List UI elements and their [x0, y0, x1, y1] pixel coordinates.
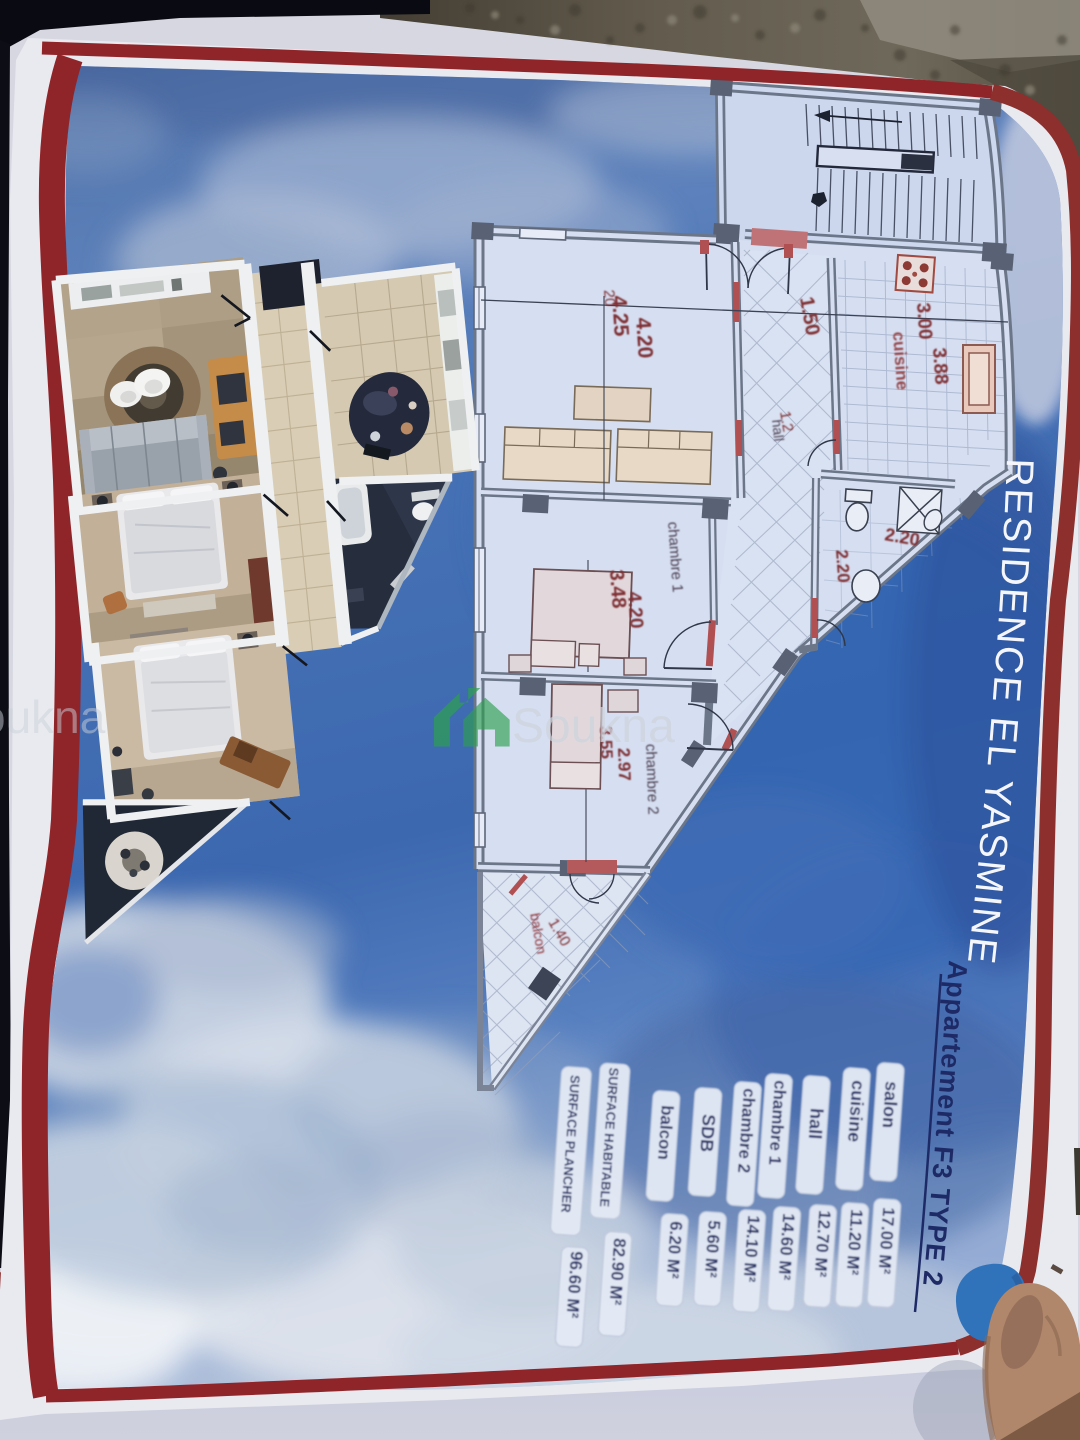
svg-text:3.00: 3.00 — [912, 302, 936, 340]
svg-text:chambre 2: chambre 2 — [642, 744, 661, 815]
svg-text:2.20: 2.20 — [832, 549, 853, 583]
svg-text:oukna: oukna — [0, 691, 106, 743]
svg-text:6.20 M²: 6.20 M² — [663, 1221, 686, 1280]
svg-text:5.60 M²: 5.60 M² — [701, 1220, 724, 1279]
svg-text:20: 20 — [600, 289, 618, 307]
svg-text:hall: hall — [805, 1108, 827, 1140]
svg-text:balcon: balcon — [654, 1105, 677, 1161]
svg-text:SDB: SDB — [696, 1114, 719, 1153]
svg-text:3.88: 3.88 — [928, 347, 952, 385]
svg-text:4.20: 4.20 — [631, 317, 657, 359]
svg-text:hall: hall — [769, 419, 787, 442]
svg-text:Soukna: Soukna — [512, 700, 675, 753]
svg-text:salon: salon — [879, 1081, 902, 1129]
svg-text:4.20: 4.20 — [623, 591, 647, 629]
